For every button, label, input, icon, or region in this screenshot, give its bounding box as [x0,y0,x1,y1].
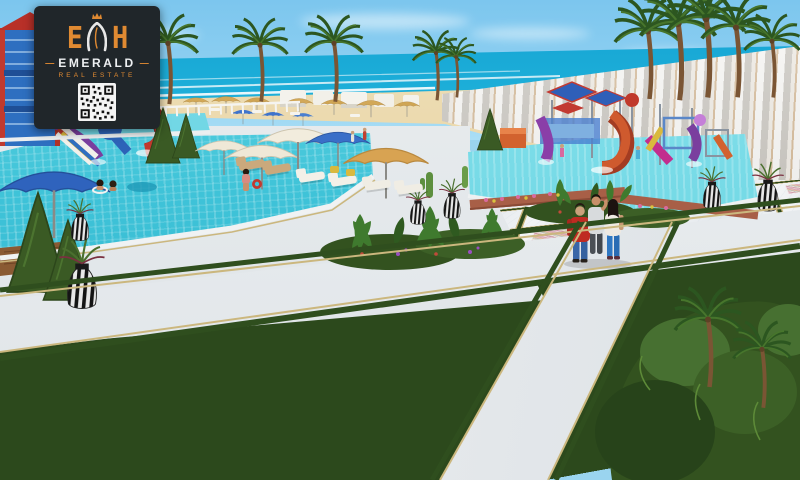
brand-subtitle: REAL ESTATE [59,72,136,79]
brand-name: EMERALD [58,56,136,70]
dash-right: — [140,58,149,68]
monogram-letter-e: E [67,23,82,53]
qr-code [78,83,116,121]
kids-aqua-park [500,82,730,174]
brand-mark-icon [91,13,103,20]
monogram-letter-h: H [112,23,127,53]
dash-left: — [45,58,54,68]
brand-monogram: E H [67,22,128,52]
swimmers [93,179,157,193]
seated-person [242,169,262,191]
brand-name-row: — EMERALD — [45,56,149,70]
brand-badge: E H — EMERALD — REAL ESTATE [34,6,160,129]
resort-render: E H — EMERALD — REAL ESTATE [0,0,800,480]
emerald-leaf-icon [87,22,107,52]
